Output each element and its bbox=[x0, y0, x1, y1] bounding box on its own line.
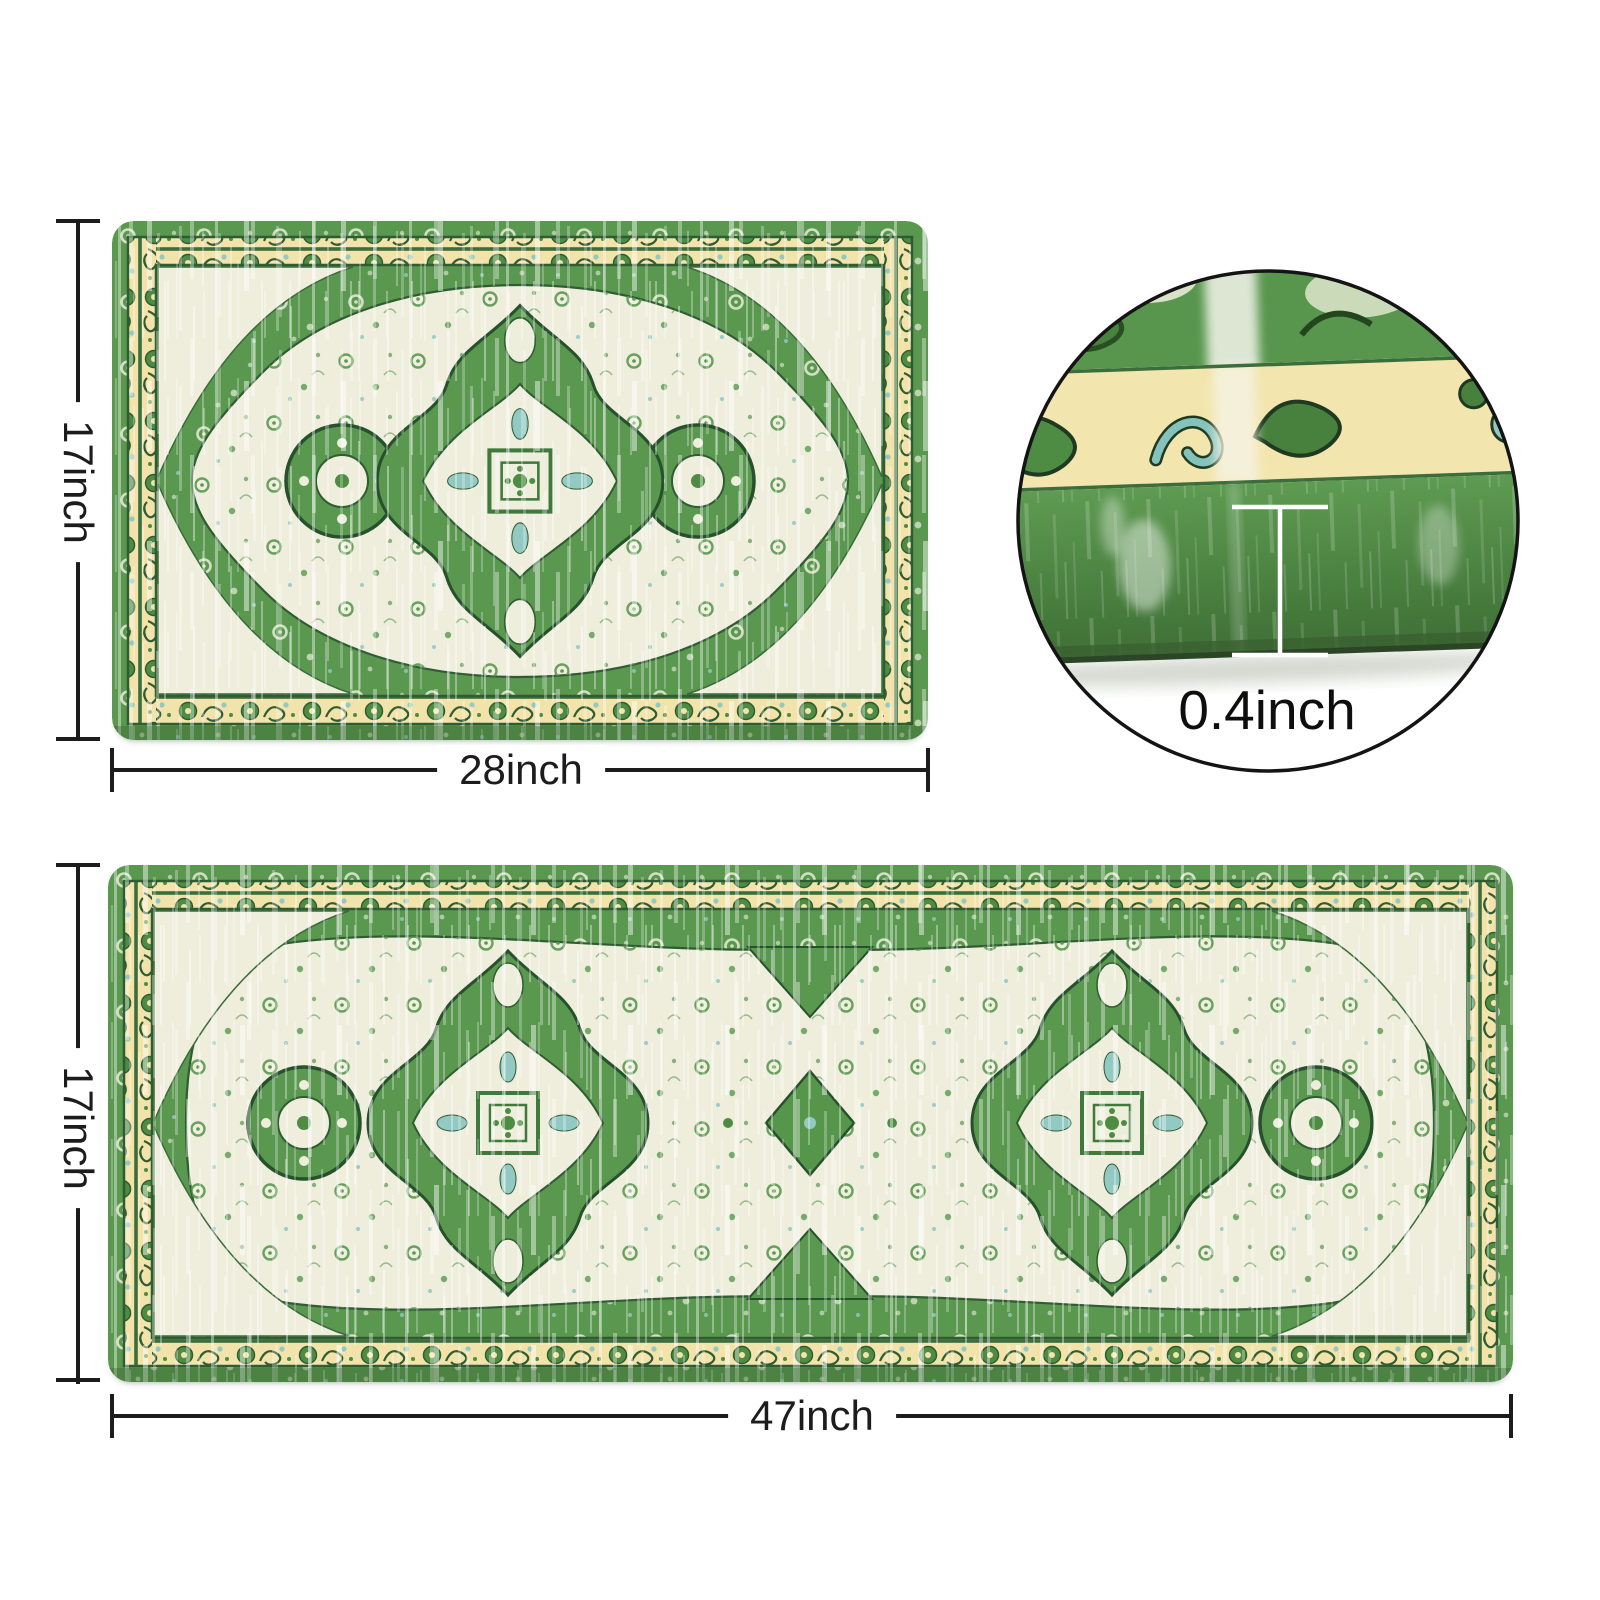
runner-mat-height-label: 17inch bbox=[53, 1048, 103, 1208]
thickness-label: 0.4inch bbox=[1178, 679, 1355, 741]
thickness-detail-svg: 0.4inch bbox=[1008, 261, 1528, 781]
dimension-cap-right bbox=[1509, 1394, 1513, 1438]
small-mat-width-label: 28inch bbox=[437, 745, 605, 795]
thickness-detail-circle: 0.4inch bbox=[1008, 261, 1528, 781]
dimension-cap-right bbox=[926, 748, 930, 792]
small-mat-rug-svg bbox=[112, 221, 928, 740]
small-mat-height-label: 17inch bbox=[53, 402, 103, 562]
dimension-cap-bottom bbox=[56, 1378, 100, 1382]
runner-mat-width-label: 47inch bbox=[728, 1391, 896, 1441]
dimension-cap-bottom bbox=[56, 737, 100, 741]
small-mat-image bbox=[112, 221, 928, 740]
runner-mat-image bbox=[108, 865, 1513, 1382]
product-image-canvas: 17inch 28inch bbox=[0, 0, 1600, 1600]
runner-mat-rug-svg bbox=[108, 865, 1513, 1382]
